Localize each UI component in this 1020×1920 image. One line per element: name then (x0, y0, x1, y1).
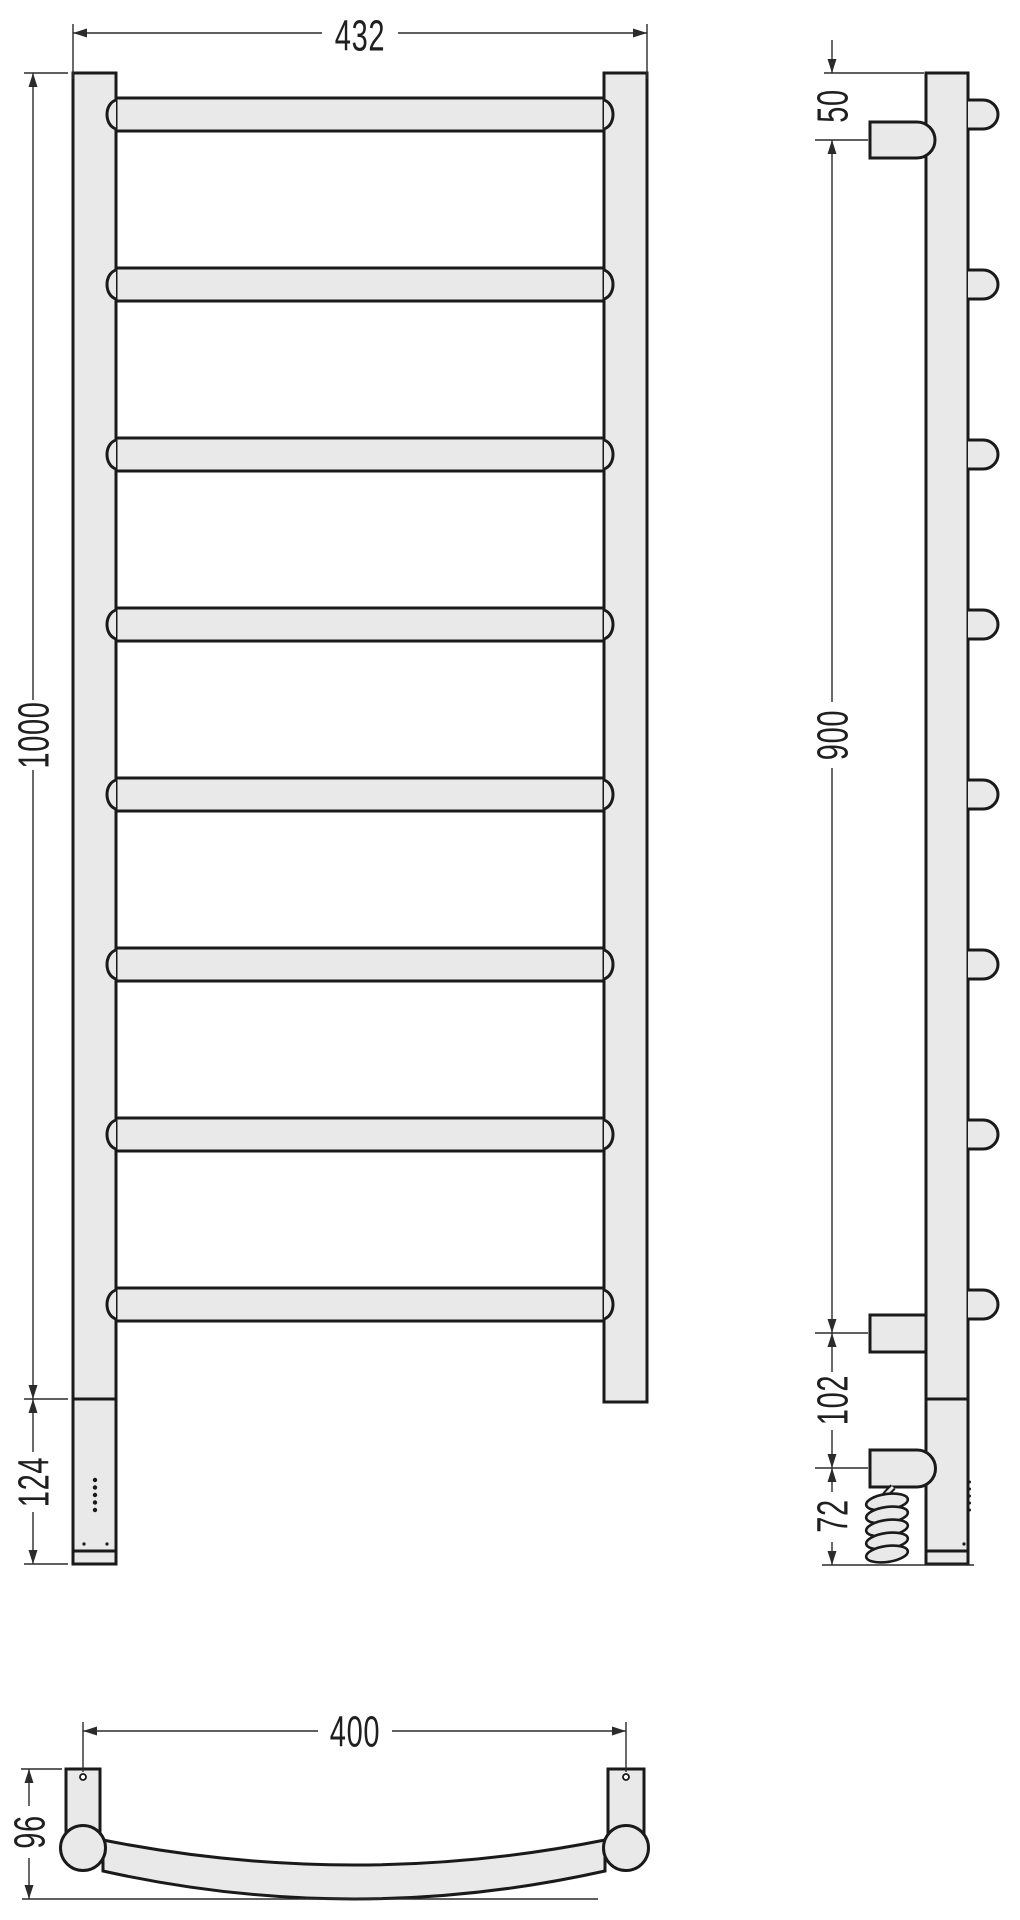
side-view (865, 73, 998, 1565)
arrow-up (29, 1399, 38, 1413)
side-rail (926, 73, 968, 1399)
arrow-down (29, 1385, 38, 1399)
rung (107, 1288, 613, 1321)
arrow-down (828, 1551, 837, 1565)
dim-side-bottom-offset: 72 (807, 1499, 857, 1533)
dim-side-bracket-span: 900 (807, 710, 857, 760)
left-mount-hole (80, 1774, 86, 1780)
arrow-up (828, 140, 837, 154)
dim-front-height: 1000 (8, 701, 58, 768)
arrow-up (828, 1468, 837, 1482)
side-lower-bracket (870, 1315, 928, 1352)
bottom-right-post (604, 1826, 649, 1871)
arrow-left (83, 1727, 97, 1736)
arrow-down (828, 1454, 837, 1468)
side-rung-ends (968, 100, 998, 1319)
front-bottom-cap (73, 1551, 116, 1564)
rung (107, 98, 613, 131)
side-upper-bracket (870, 122, 935, 158)
dim-front-width: 432 (335, 10, 385, 60)
arrow-down (29, 1550, 38, 1564)
heating-cartridge (870, 1450, 936, 1487)
arrow-down (828, 1319, 837, 1333)
rung (107, 268, 613, 301)
rung (107, 1118, 613, 1151)
arrow-right (633, 29, 647, 38)
front-rungs (107, 98, 613, 1321)
power-cable-coil (865, 1487, 909, 1565)
arrow-up (29, 73, 38, 87)
arrow-right (612, 1727, 626, 1736)
arrow-up (25, 1769, 34, 1783)
right-mount-hole (623, 1774, 629, 1780)
arrow-left (73, 29, 87, 38)
technical-drawing: 432 1000 124 (0, 0, 1020, 1920)
arrow-down (25, 1885, 34, 1899)
arrow-up (828, 1333, 837, 1347)
front-view (73, 73, 647, 1564)
bottom-curved-rung (103, 1840, 605, 1899)
front-control-housing (73, 1399, 116, 1551)
bottom-left-post (61, 1826, 106, 1871)
rung (107, 778, 613, 811)
dim-front-lower-section: 124 (8, 1457, 58, 1507)
arrow-down (828, 59, 837, 73)
dim-bottom-depth: 96 (4, 1815, 54, 1849)
rung (107, 948, 613, 981)
front-right-rail (604, 73, 647, 1402)
dim-side-top-offset: 50 (807, 89, 857, 123)
side-bottom-cap (926, 1551, 968, 1564)
bottom-view (61, 1769, 649, 1899)
rung (107, 438, 613, 471)
drawing-canvas: 432 1000 124 (0, 0, 1020, 1920)
dim-bottom-mount-spacing: 400 (330, 1706, 380, 1756)
dim-side-heater-offset: 102 (807, 1375, 857, 1425)
front-left-rail (73, 73, 116, 1399)
rung (107, 608, 613, 641)
